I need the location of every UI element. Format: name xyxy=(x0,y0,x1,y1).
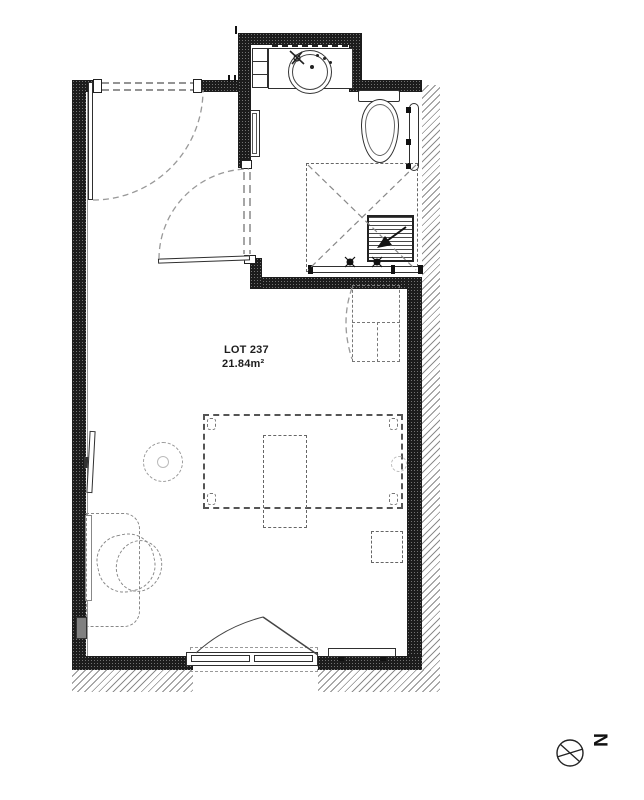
window-panel-right xyxy=(254,655,313,662)
wall-bottom-right xyxy=(318,656,422,670)
north-letter: N xyxy=(592,729,606,751)
survey-tick xyxy=(234,75,236,82)
survey-tick xyxy=(228,75,230,82)
radiator-bracket xyxy=(406,139,411,145)
wall-alcove-north xyxy=(238,33,360,45)
north-compass xyxy=(557,740,583,766)
radiator-bracket xyxy=(406,107,411,113)
wall-panel-inner xyxy=(252,113,257,154)
basin-dot xyxy=(316,54,319,57)
bath-jamb-top xyxy=(241,160,252,169)
bed-corner xyxy=(207,493,216,505)
cabinet-shelf-line xyxy=(253,61,267,62)
basin-drain xyxy=(310,65,314,69)
kitchenette-divider-v xyxy=(377,322,378,362)
cabinet-shelf-line xyxy=(253,74,267,75)
kerb-cap xyxy=(418,265,423,274)
towel-radiator xyxy=(409,103,419,171)
basin-dot xyxy=(329,61,332,64)
wall-light xyxy=(391,456,407,472)
stool-center xyxy=(157,456,169,468)
hatch-strip-right xyxy=(422,85,440,690)
bed-corner xyxy=(389,493,398,505)
survey-tick xyxy=(235,26,237,34)
shower-tray xyxy=(367,215,414,262)
entry-door-arc xyxy=(93,90,203,200)
basin-dot xyxy=(323,57,326,60)
floor-plan: LOT 237 21.84m² N xyxy=(0,0,644,800)
wall-left xyxy=(72,80,86,668)
window-panel-left xyxy=(191,655,250,662)
bedside-table xyxy=(263,435,307,528)
hatch-strip-bottom-right xyxy=(318,670,440,692)
lot-label: LOT 237 xyxy=(224,344,269,356)
hatch-strip-bottom-left xyxy=(72,670,193,692)
mirror xyxy=(272,45,348,47)
bed-corner xyxy=(389,418,398,430)
kitchenette-divider-h xyxy=(352,322,400,323)
wall-top-right xyxy=(202,80,242,92)
entry-jamb-left xyxy=(93,79,102,93)
bathroom-door-arc xyxy=(159,169,249,259)
wall-east xyxy=(407,277,422,668)
bathroom-door-leaf xyxy=(158,255,250,263)
north-letter-glyph: N xyxy=(588,733,610,747)
area-label: 21.84m² xyxy=(222,358,264,370)
kerb-cap xyxy=(391,265,395,274)
entry-door-leaf xyxy=(88,82,93,200)
column xyxy=(76,617,87,639)
radiator-foot xyxy=(380,657,386,661)
kerb-cap xyxy=(308,265,313,274)
bed-corner xyxy=(207,418,216,430)
pouf xyxy=(371,531,403,563)
radiator-foot xyxy=(338,657,344,661)
shower-kerb xyxy=(310,266,422,273)
wall-bottom-left xyxy=(72,656,193,670)
entry-jamb-right xyxy=(193,79,202,93)
kitchenette-unit xyxy=(352,285,400,362)
bathroom-cabinet xyxy=(252,48,268,88)
radiator xyxy=(328,648,396,657)
